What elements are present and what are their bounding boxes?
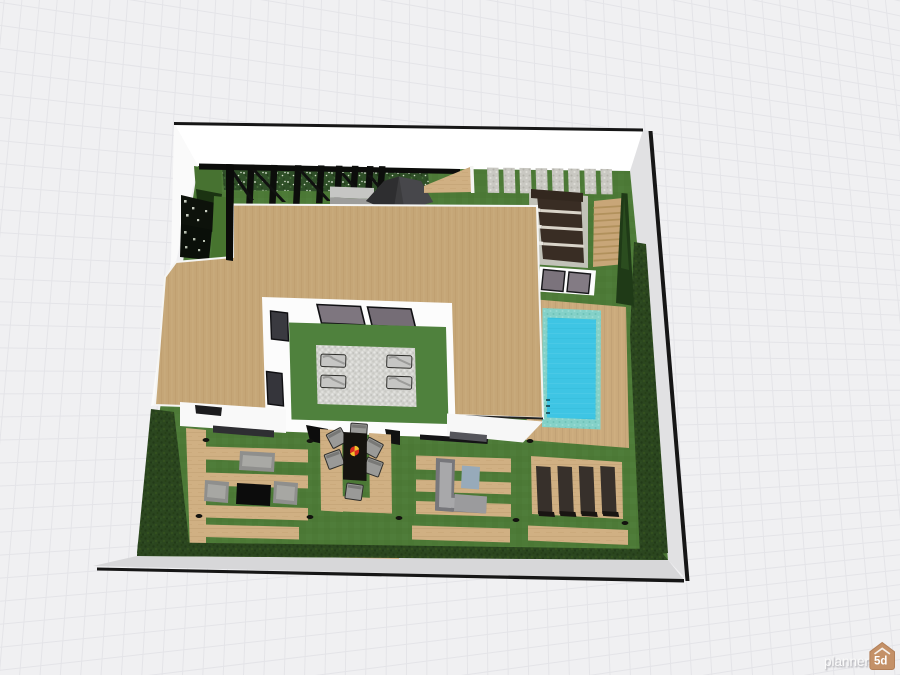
- svg-text:5d: 5d: [874, 656, 887, 668]
- svg-text:planner: planner: [824, 654, 870, 669]
